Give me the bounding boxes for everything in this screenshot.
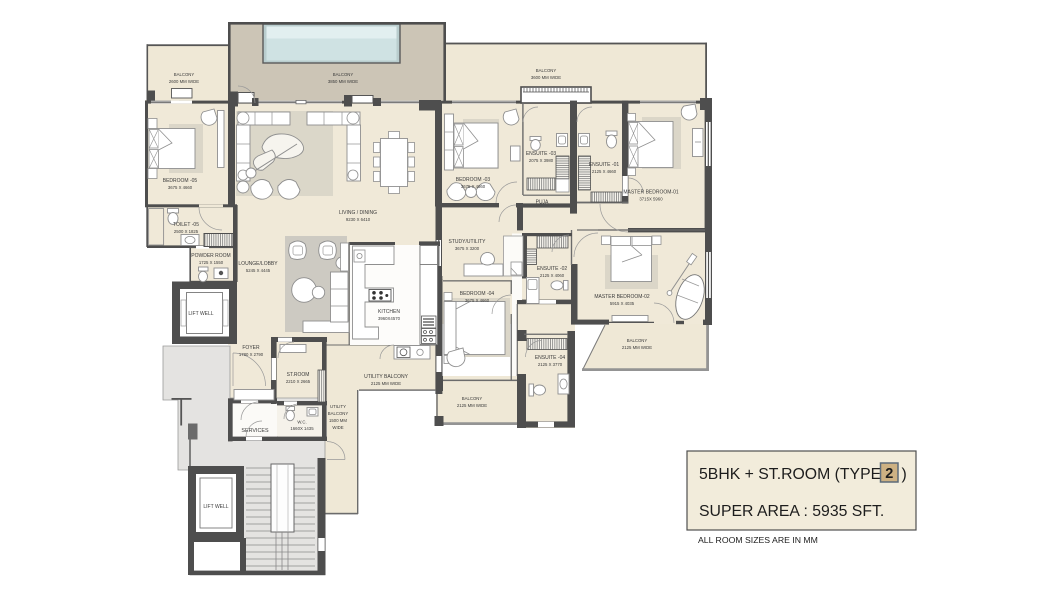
svg-text:3675 X 4660: 3675 X 4660 xyxy=(465,298,490,303)
svg-text:3675 X 4660: 3675 X 4660 xyxy=(168,185,193,190)
svg-text:5245 X 4445: 5245 X 4445 xyxy=(246,268,271,273)
svg-text:): ) xyxy=(902,466,907,483)
svg-text:UTILITY: UTILITY xyxy=(330,404,346,409)
svg-text:KITCHEN: KITCHEN xyxy=(378,309,400,315)
svg-text:BALCONY: BALCONY xyxy=(328,411,349,416)
svg-text:3850 MM WIDE: 3850 MM WIDE xyxy=(328,79,358,84)
svg-text:1725 X 1550: 1725 X 1550 xyxy=(199,260,224,265)
svg-text:1780 X 2790: 1780 X 2790 xyxy=(239,352,264,357)
svg-text:FOYER: FOYER xyxy=(242,345,260,351)
svg-text:LIFT WELL: LIFT WELL xyxy=(203,504,228,510)
svg-text:BALCONY: BALCONY xyxy=(174,72,195,77)
svg-text:BALCONY: BALCONY xyxy=(462,396,483,401)
svg-text:SERVICES: SERVICES xyxy=(241,428,269,434)
svg-text:2125 X 4660: 2125 X 4660 xyxy=(592,169,617,174)
svg-text:TOILET -05: TOILET -05 xyxy=(173,222,199,228)
svg-text:ENSUITE -04: ENSUITE -04 xyxy=(535,355,566,361)
svg-text:ALL ROOM SIZES ARE IN MM: ALL ROOM SIZES ARE IN MM xyxy=(698,535,818,545)
svg-text:5915 X 4035: 5915 X 4035 xyxy=(610,301,635,306)
svg-text:POWDER ROOM: POWDER ROOM xyxy=(191,253,230,259)
svg-text:LIFT WELL: LIFT WELL xyxy=(188,311,213,317)
svg-text:2125 X 4060: 2125 X 4060 xyxy=(540,273,565,278)
svg-text:ENSUITE -02: ENSUITE -02 xyxy=(537,266,568,272)
svg-text:LOUNGE/LOBBY: LOUNGE/LOBBY xyxy=(238,261,278,267)
svg-text:ST.ROOM: ST.ROOM xyxy=(287,372,310,378)
svg-text:2: 2 xyxy=(885,466,893,482)
svg-text:W.C.: W.C. xyxy=(297,420,306,425)
svg-text:BEDROOM -05: BEDROOM -05 xyxy=(163,178,198,184)
svg-text:WIDE: WIDE xyxy=(332,425,343,430)
svg-text:3675 X 4660: 3675 X 4660 xyxy=(461,184,486,189)
svg-text:1500 MM: 1500 MM xyxy=(329,418,347,423)
svg-text:2500 X 1825: 2500 X 1825 xyxy=(174,229,199,234)
svg-text:3675 X 3200: 3675 X 3200 xyxy=(455,246,480,251)
svg-text:2125 MM WIDE: 2125 MM WIDE xyxy=(371,381,401,386)
svg-text:BALCONY: BALCONY xyxy=(333,72,354,77)
svg-text:ENSUITE -01: ENSUITE -01 xyxy=(589,162,620,168)
svg-text:2600 MM WIDE: 2600 MM WIDE xyxy=(169,79,199,84)
svg-text:ENSUITE -03: ENSUITE -03 xyxy=(526,151,557,157)
svg-text:PUJA: PUJA xyxy=(536,200,549,206)
svg-text:STUDY/UTILITY: STUDY/UTILITY xyxy=(449,239,487,245)
svg-text:3715X 5960: 3715X 5960 xyxy=(639,197,663,202)
svg-text:2210 X 2665: 2210 X 2665 xyxy=(286,379,311,384)
svg-text:UTILITY BALCONY: UTILITY BALCONY xyxy=(364,374,408,380)
svg-text:BEDROOM -03: BEDROOM -03 xyxy=(456,177,491,183)
svg-text:3600 MM WIDE: 3600 MM WIDE xyxy=(531,75,561,80)
svg-text:MASTER BEDROOM-01: MASTER BEDROOM-01 xyxy=(623,190,679,196)
svg-text:5BHK + ST.ROOM (TYPE: 5BHK + ST.ROOM (TYPE xyxy=(699,466,881,483)
svg-text:2125 MM WIDE: 2125 MM WIDE xyxy=(457,403,487,408)
svg-text:9230 X 6410: 9230 X 6410 xyxy=(346,217,371,222)
svg-text:MASTER BEDROOM-02: MASTER BEDROOM-02 xyxy=(594,294,650,300)
svg-text:LIVING / DINING: LIVING / DINING xyxy=(339,210,377,216)
svg-text:SUPER AREA : 5935 SFT.: SUPER AREA : 5935 SFT. xyxy=(699,503,884,520)
svg-text:BALCONY: BALCONY xyxy=(627,338,648,343)
svg-text:2075 X 3980: 2075 X 3980 xyxy=(529,158,554,163)
svg-text:1660X 1435: 1660X 1435 xyxy=(290,426,314,431)
svg-text:2125 MM WIDE: 2125 MM WIDE xyxy=(622,345,652,350)
svg-text:3960X4570: 3960X4570 xyxy=(378,316,401,321)
svg-text:BEDROOM -04: BEDROOM -04 xyxy=(460,291,495,297)
svg-text:2125 X 3770: 2125 X 3770 xyxy=(538,362,563,367)
svg-text:BALCONY: BALCONY xyxy=(536,68,557,73)
